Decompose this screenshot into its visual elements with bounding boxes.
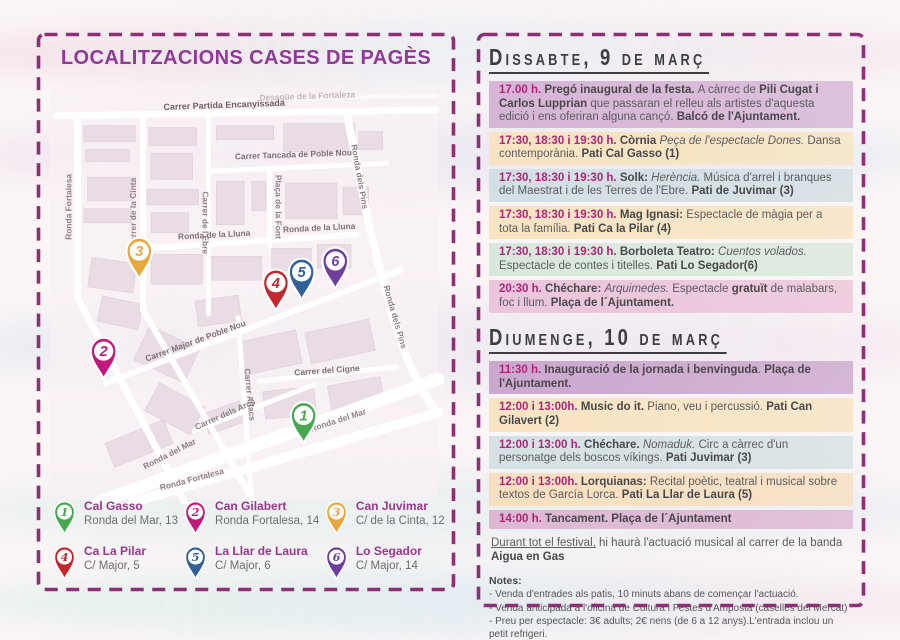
legend-address: C/ Major, 6 bbox=[215, 559, 308, 574]
event-text: Chéchare: bbox=[545, 283, 604, 295]
event-text: Music do it. bbox=[581, 401, 647, 413]
legend-pin-icon-2: 2 bbox=[183, 500, 208, 535]
event-row: 17:30, 18:30 i 19:30 h. Borboleta Teatro… bbox=[489, 243, 853, 276]
legend-name: La Llar de Laura bbox=[215, 544, 308, 559]
legend-name: Lo Segador bbox=[356, 544, 422, 559]
svg-text:2: 2 bbox=[191, 505, 200, 519]
legend-address: Ronda del Mar, 13 bbox=[84, 514, 178, 529]
legend-name: Ca La Pilar bbox=[84, 544, 146, 559]
event-row: 11:30 h. Inauguració de la jornada i ben… bbox=[489, 361, 853, 394]
svg-text:1: 1 bbox=[300, 408, 308, 424]
event-text: Pati Juvimar (3) bbox=[666, 452, 752, 464]
page-title: LOCALITZACIONS CASES DE PAGÈS bbox=[36, 47, 456, 70]
event-text: Balcó de l'Ajuntament. bbox=[677, 111, 801, 123]
svg-text:6: 6 bbox=[331, 254, 340, 270]
event-text: Peça de l'espectacle Dones. bbox=[659, 135, 804, 147]
note-line: - Venda anticipada a l'oficina de Cultur… bbox=[489, 602, 853, 615]
notes-title: Notes: bbox=[489, 575, 853, 589]
event-row: Durant tot el festival, hi haurà l'actua… bbox=[489, 533, 853, 564]
event-text: hi haurà l'actuació musical al carrer de… bbox=[596, 537, 842, 549]
event-text: Piano, veu i percussió. bbox=[647, 401, 766, 413]
event-row: 17:30, 18:30 i 19:30 h. Mag Ignasi: Espe… bbox=[489, 206, 853, 239]
event-text: Borboleta Teatro: bbox=[620, 246, 718, 258]
event-row: 17:30, 18:30 i 19:30 h. Solk: Herència. … bbox=[489, 169, 853, 202]
event-time: 17:30, 18:30 i 19:30 h. bbox=[499, 246, 620, 258]
legend-address: C/ Major, 14 bbox=[356, 559, 422, 574]
legend-pin-icon-6: 6 bbox=[324, 545, 349, 580]
event-row: 12:00 i 13:00 h. Chéchare. Nomaduk. Circ… bbox=[489, 436, 853, 469]
legend-item-2: 2Can GilabertRonda Fortalesa, 14 bbox=[183, 499, 320, 535]
day-heading: Diumenge, 10 de març bbox=[489, 324, 853, 354]
map-panel: LOCALITZACIONS CASES DE PAGÈS bbox=[36, 32, 456, 592]
svg-text:2: 2 bbox=[99, 344, 108, 360]
legend-item-3: 3Can JuvimarC/ de la Cinta, 12 bbox=[324, 499, 446, 535]
day-heading-text: Diumenge, 10 de març bbox=[489, 324, 726, 354]
legend-address: Ronda Fortalesa, 14 bbox=[215, 514, 319, 529]
legend-text: Can JuvimarC/ de la Cinta, 12 bbox=[356, 499, 445, 529]
svg-text:3: 3 bbox=[135, 244, 143, 260]
event-text: Plaça de l´Ajuntament. bbox=[551, 297, 674, 309]
legend-pin-icon-3: 3 bbox=[324, 500, 349, 535]
legend-name: Can Gilabert bbox=[215, 499, 319, 514]
event-text: Pati de Juvimar (3) bbox=[691, 185, 793, 197]
legend-text: Can GilabertRonda Fortalesa, 14 bbox=[215, 499, 319, 529]
event-row: 12:00 i 13:00h. Lorquianas: Recital poèt… bbox=[489, 473, 853, 506]
event-text: Mag Ignasi: bbox=[620, 209, 686, 221]
svg-text:5: 5 bbox=[298, 265, 307, 281]
map-legend: 1Cal GassoRonda del Mar, 132Can Gilabert… bbox=[52, 499, 446, 580]
event-time: 12:00 i 13:00 h. bbox=[499, 439, 584, 451]
svg-text:4: 4 bbox=[61, 550, 69, 564]
legend-text: Lo SegadorC/ Major, 14 bbox=[356, 544, 422, 574]
svg-text:1: 1 bbox=[61, 505, 69, 519]
event-text: Arquimedes. bbox=[604, 283, 669, 295]
event-text: Tancament. Plaça de l´Ajuntament bbox=[545, 513, 731, 525]
svg-text:5: 5 bbox=[192, 550, 200, 564]
schedule-days: Dissabte, 9 de març17.00 h. Pregó inaugu… bbox=[489, 44, 853, 569]
event-text: Pati Ca la Pilar (4) bbox=[574, 223, 671, 235]
event-row: 17.00 h. Pregó inaugural de la festa. A … bbox=[489, 81, 853, 128]
event-time: 11:30 h. bbox=[499, 364, 544, 376]
event-text: Pati La Llar de Laura (5) bbox=[622, 489, 752, 501]
event-time: 17.00 h. bbox=[499, 84, 544, 96]
event-row: 20:30 h. Chéchare: Arquimedes. Espectacl… bbox=[489, 280, 853, 313]
legend-text: La Llar de LauraC/ Major, 6 bbox=[215, 544, 308, 574]
legend-item-1: 1Cal GassoRonda del Mar, 13 bbox=[52, 499, 179, 535]
event-time: 12:00 i 13:00h. bbox=[499, 476, 581, 488]
day-heading: Dissabte, 9 de març bbox=[489, 44, 853, 74]
note-line: - Venda d'entrades als patis, 10 minuts … bbox=[489, 588, 853, 601]
event-time: 17:30, 18:30 i 19:30 h. bbox=[499, 135, 620, 147]
street-label: Carrer de l'Ebre bbox=[200, 191, 210, 254]
event-time: 17:30, 18:30 i 19:30 h. bbox=[499, 209, 620, 221]
event-row: 12:00 i 13:00h. Music do it. Piano, veu … bbox=[489, 398, 853, 431]
event-text: Pati Cal Gasso (1) bbox=[581, 148, 679, 160]
event-time: 14:00 h. bbox=[499, 513, 545, 525]
legend-pin-icon-1: 1 bbox=[52, 500, 77, 535]
event-text: Pregó inaugural de la festa. bbox=[544, 84, 697, 96]
event-text: Durant tot el festival, bbox=[491, 537, 596, 549]
legend-name: Cal Gasso bbox=[84, 499, 178, 514]
event-text: Còrnia bbox=[620, 135, 660, 147]
notes-lines: - Venda d'entrades als patis, 10 minuts … bbox=[489, 588, 853, 640]
note-line: - Preu per espectacle: 3€ adults; 2€ nen… bbox=[489, 615, 853, 640]
event-text: Espectacle bbox=[669, 283, 732, 295]
event-text: Solk: bbox=[620, 172, 651, 184]
event-text: Aigua en Gas bbox=[491, 551, 565, 563]
legend-name: Can Juvimar bbox=[356, 499, 445, 514]
legend-address: C/ de la Cinta, 12 bbox=[356, 514, 445, 529]
svg-text:6: 6 bbox=[332, 550, 340, 564]
event-text: A càrrec de bbox=[698, 84, 759, 96]
event-text: Chéchare. bbox=[584, 439, 643, 451]
event-time: 17:30, 18:30 i 19:30 h. bbox=[499, 172, 620, 184]
legend-address: C/ Major, 5 bbox=[84, 559, 146, 574]
legend-pin-icon-4: 4 bbox=[52, 545, 77, 580]
city-map: Desagüe de la FortalezaCarrer Partida En… bbox=[48, 84, 444, 504]
legend-text: Ca La PilarC/ Major, 5 bbox=[84, 544, 146, 574]
schedule-panel: Dissabte, 9 de març17.00 h. Pregó inaugu… bbox=[476, 32, 866, 608]
event-row: 17:30, 18:30 i 19:30 h. Còrnia Peça de l… bbox=[489, 132, 853, 165]
event-time: 12:00 i 13:00h. bbox=[499, 401, 581, 413]
svg-text:4: 4 bbox=[271, 276, 280, 292]
event-text: Espectacle de contes i titelles. bbox=[499, 260, 656, 272]
event-text: Lorquianas: bbox=[581, 476, 650, 488]
notes-section: Notes: - Venda d'entrades als patis, 10 … bbox=[489, 569, 853, 640]
legend-pin-icon-5: 5 bbox=[183, 545, 208, 580]
legend-item-5: 5La Llar de LauraC/ Major, 6 bbox=[183, 544, 320, 580]
event-text: gratuït bbox=[732, 283, 768, 295]
event-text: Herència. bbox=[651, 172, 700, 184]
legend-item-6: 6Lo SegadorC/ Major, 14 bbox=[324, 544, 446, 580]
legend-item-4: 4Ca La PilarC/ Major, 5 bbox=[52, 544, 179, 580]
svg-text:3: 3 bbox=[332, 505, 340, 519]
legend-text: Cal GassoRonda del Mar, 13 bbox=[84, 499, 178, 529]
event-text: Inauguració de la jornada i benvinguda bbox=[544, 364, 757, 376]
day-heading-text: Dissabte, 9 de març bbox=[489, 44, 709, 74]
street-label: Ronda Fortalesa bbox=[64, 174, 74, 240]
event-text: Pati Lo Segador(6) bbox=[656, 260, 758, 272]
event-text: Cuentos volados. bbox=[718, 246, 807, 258]
event-row: 14:00 h. Tancament. Plaça de l´Ajuntamen… bbox=[489, 510, 853, 530]
event-time: 20:30 h. bbox=[499, 283, 545, 295]
event-text: Nomaduk. bbox=[643, 439, 695, 451]
